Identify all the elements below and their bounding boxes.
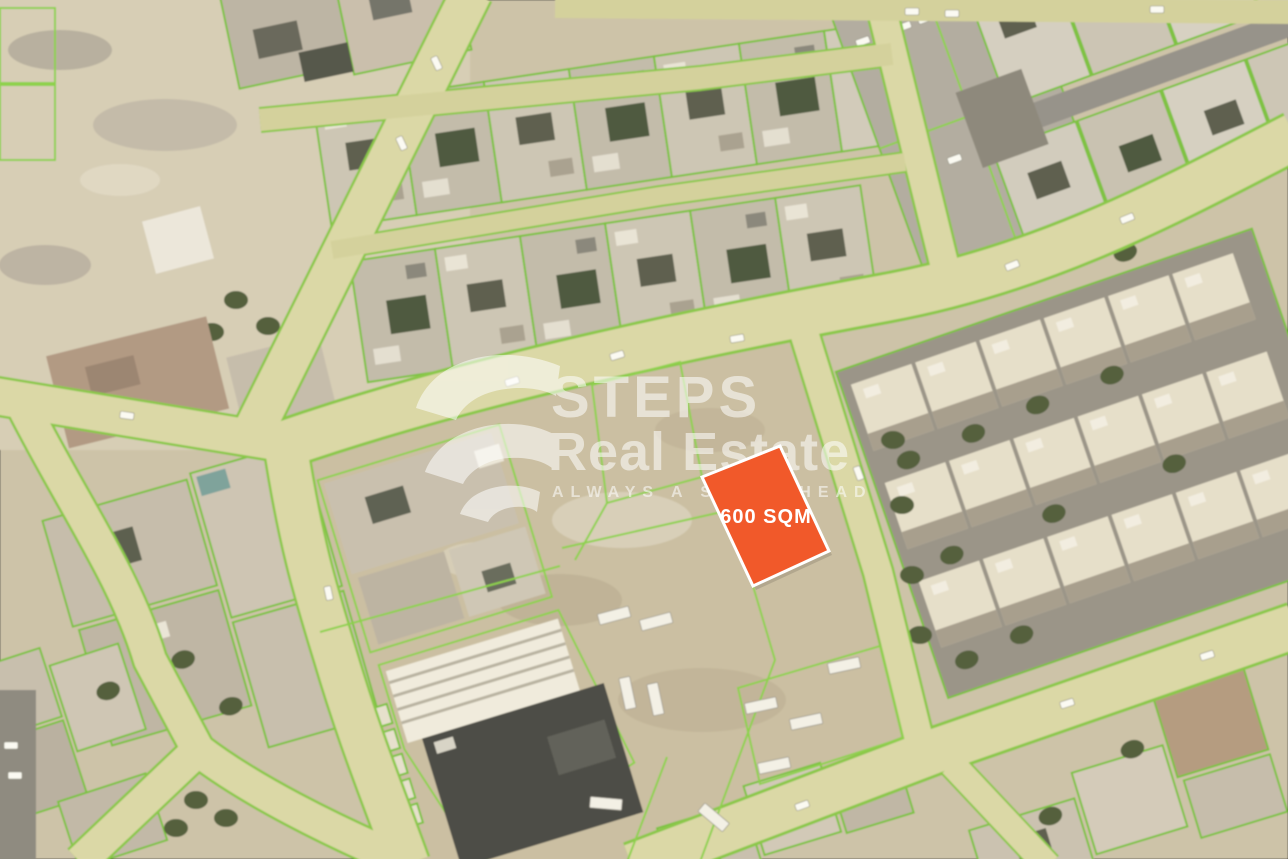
brand-name: STEPS xyxy=(551,365,761,430)
parcel-area-label: 600 SQM xyxy=(720,506,811,528)
brand-subname: Real Estate xyxy=(548,422,850,482)
satellite-listing-image: STEPS Real Estate ALWAYS A STEP AHEAD 60… xyxy=(0,0,1288,859)
map-canvas: STEPS Real Estate ALWAYS A STEP AHEAD 60… xyxy=(0,0,1288,859)
